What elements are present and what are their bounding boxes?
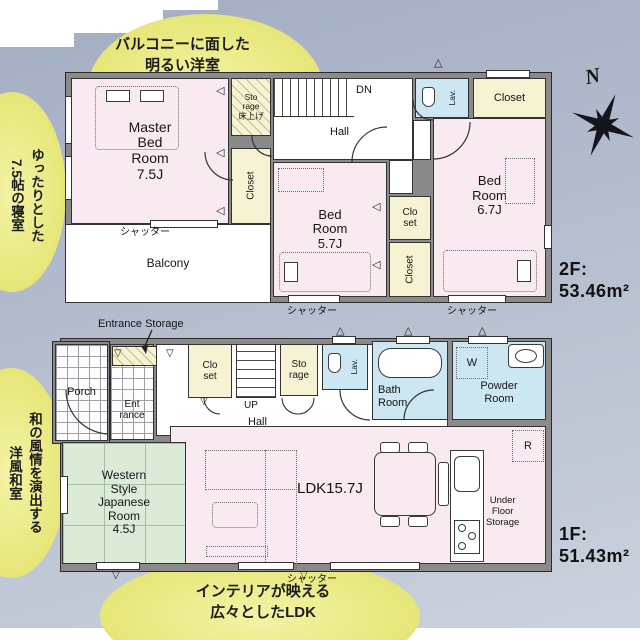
entrance-storage-arrow <box>130 330 160 356</box>
annotation-ldk: インテリアが映える 広々としたLDK <box>148 580 378 622</box>
compass-icon <box>568 90 638 160</box>
vent-triangle: △ <box>336 324 344 337</box>
vent-triangle: △ <box>434 56 442 69</box>
floor-2f-area-label: 2F: <box>559 259 588 280</box>
door-arcs-1f <box>52 338 552 572</box>
floor-2f-area-value: 53.46m² <box>559 281 630 302</box>
floor-1f-area-value: 51.43m² <box>559 546 630 567</box>
vent-triangle: △ <box>404 324 412 337</box>
annotation-bedroom-75: ゆったりとした 7.5帖の寝室 <box>6 100 46 290</box>
shutter-label: シャッター <box>447 306 497 318</box>
floor-1f-area-label: 1F: <box>559 524 588 545</box>
background-notch <box>0 0 74 47</box>
compass-north-label: N <box>583 63 603 90</box>
annotation-japanese-room: 和の風情を演出する 洋風和室 <box>4 378 44 568</box>
floorplan-canvas: Master Bed Room 7.5J Sto rage 床上げ DN Hal… <box>0 0 640 640</box>
door-arcs-2f <box>65 72 552 303</box>
vent-triangle: △ <box>478 324 486 337</box>
annotation-balcony-room: バルコニーに面した 明るい洋室 <box>90 33 275 75</box>
entrance-storage-callout: Entrance Storage <box>98 318 184 331</box>
shutter-label: シャッター <box>287 306 337 318</box>
